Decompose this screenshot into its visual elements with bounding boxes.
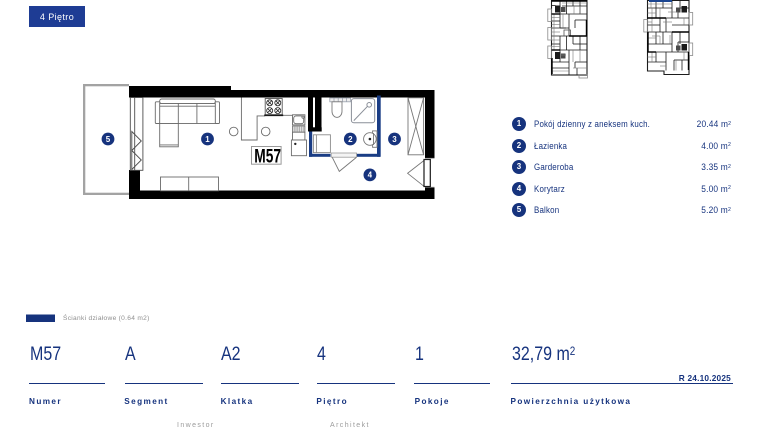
svg-text:4: 4 (368, 171, 373, 180)
svg-text:3: 3 (392, 135, 397, 144)
svg-text:2: 2 (348, 135, 353, 144)
svg-text:M57: M57 (254, 145, 281, 167)
svg-text:1: 1 (205, 135, 210, 144)
svg-text:5: 5 (106, 135, 111, 144)
